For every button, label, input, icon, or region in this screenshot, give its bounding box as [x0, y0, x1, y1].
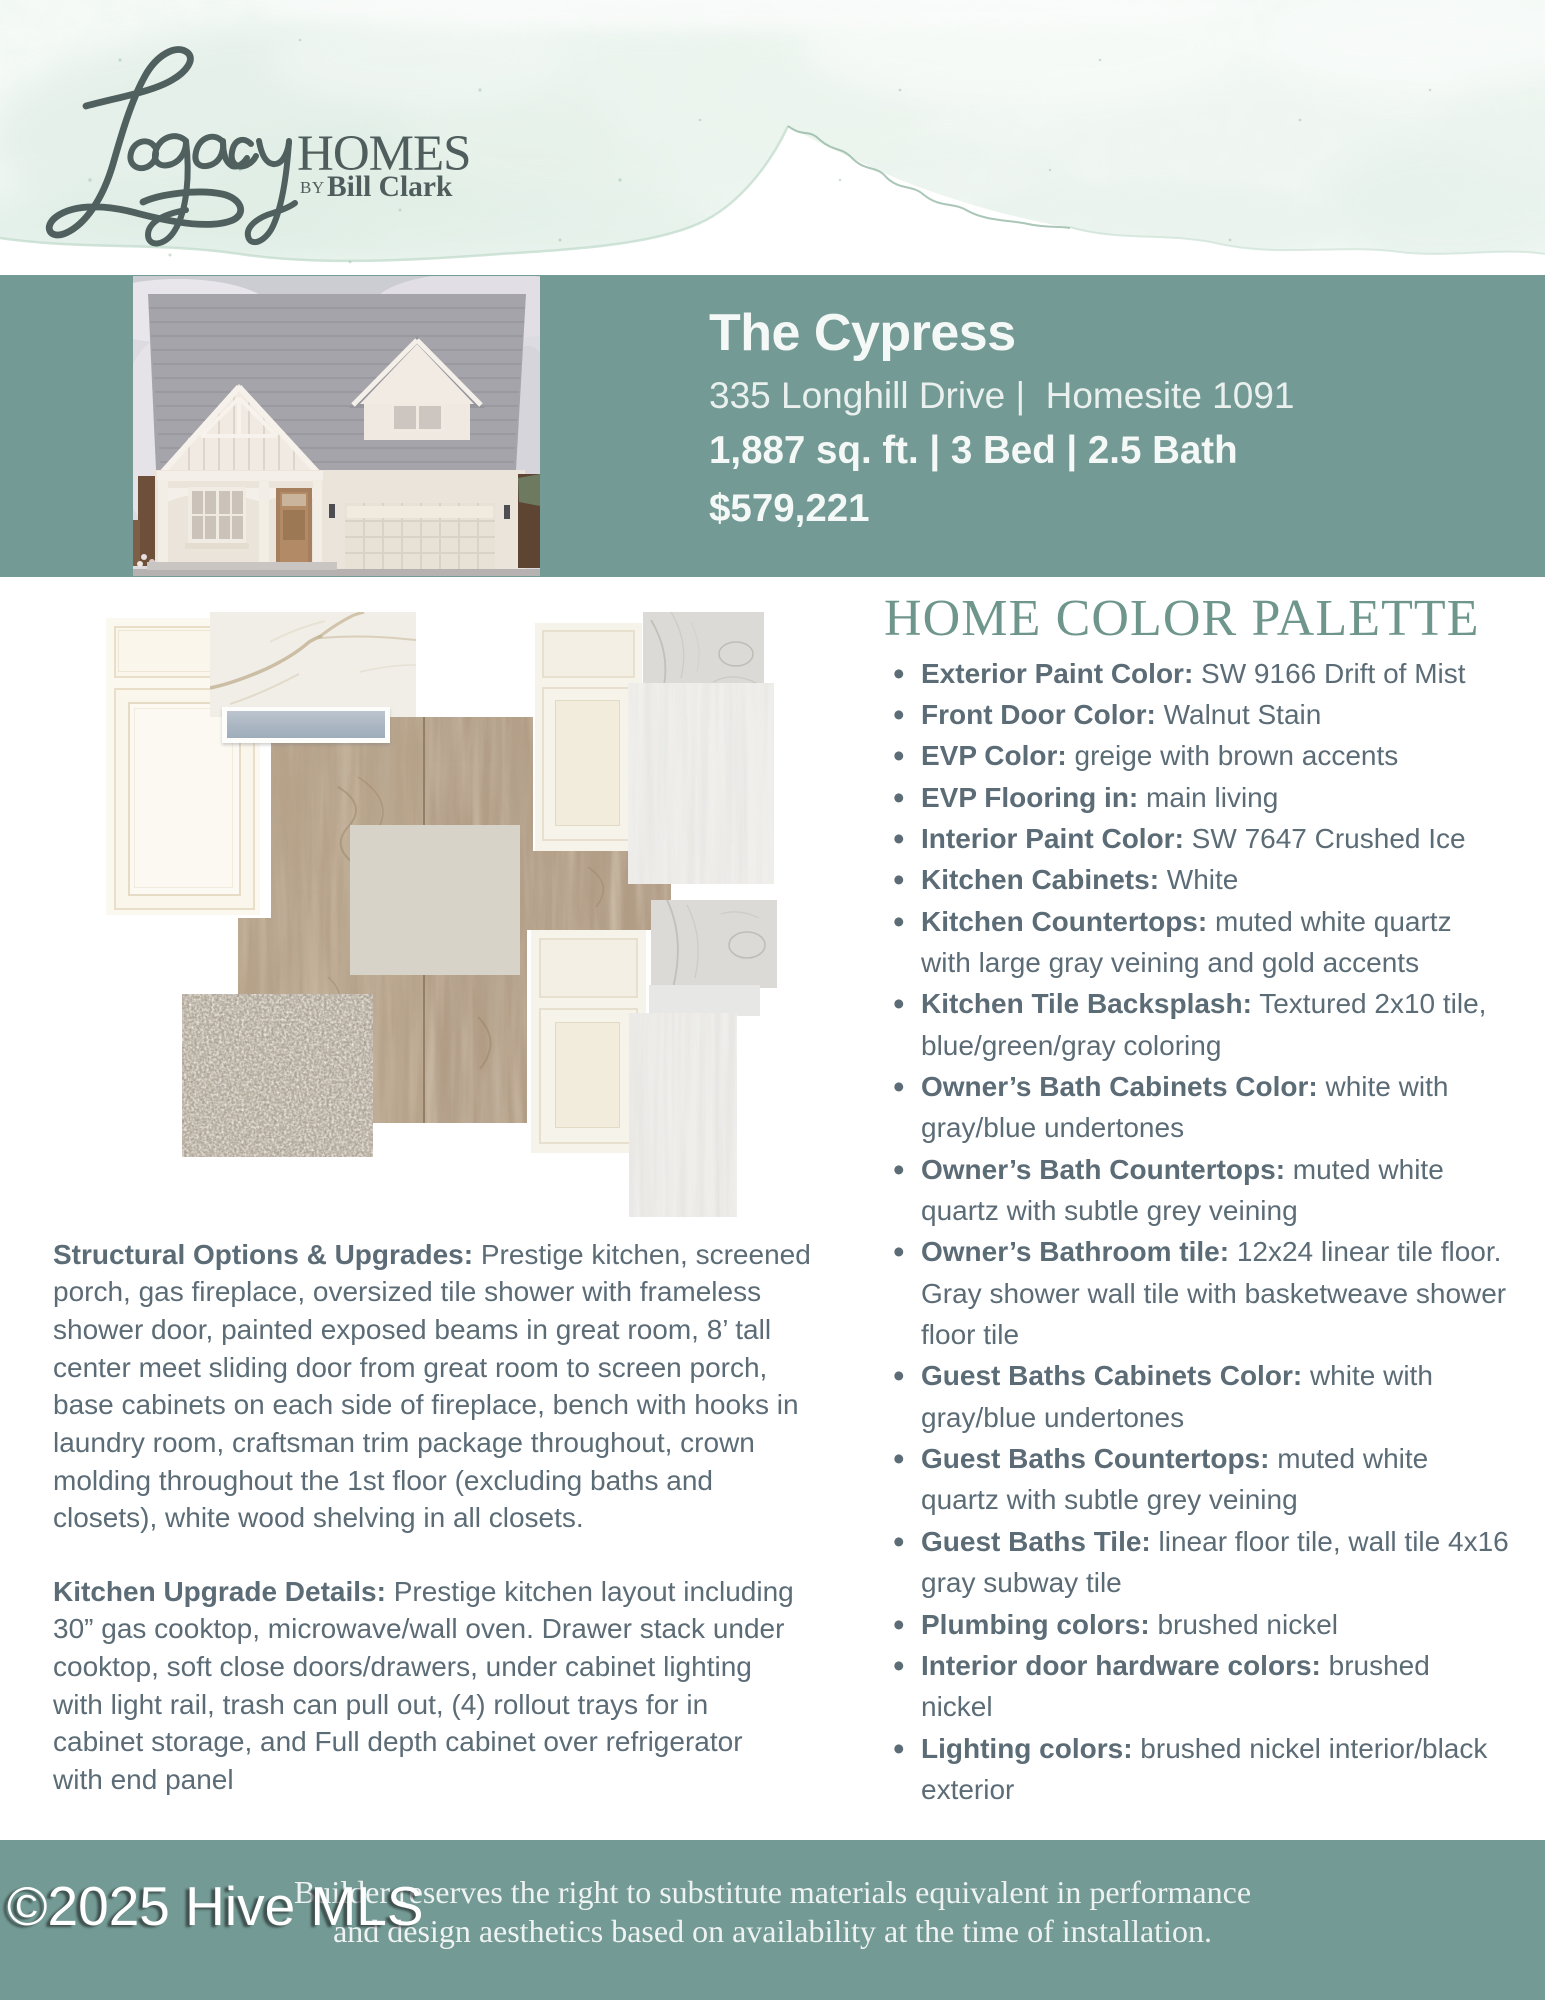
- svg-text:BY: BY: [300, 178, 325, 197]
- svg-text:Bill Clark: Bill Clark: [327, 171, 453, 203]
